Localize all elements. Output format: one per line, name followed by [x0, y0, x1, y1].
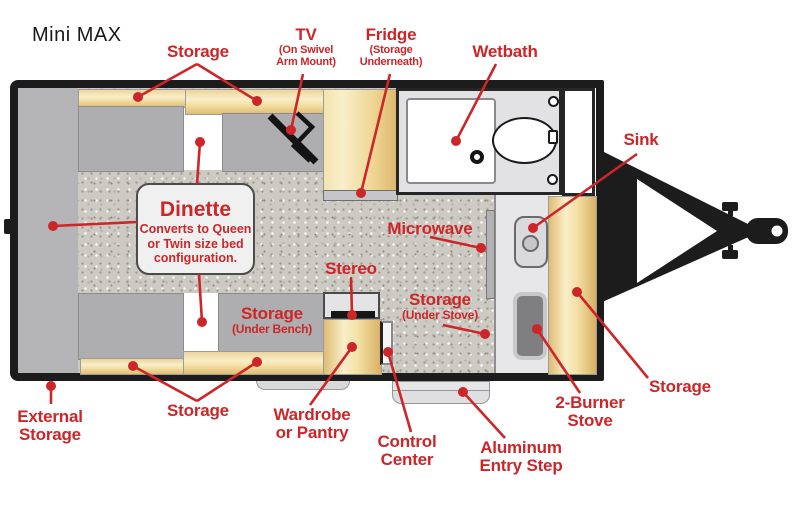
label-two-burner-stove: 2-Burner Stove — [530, 394, 650, 430]
fridge-cabinet — [323, 89, 398, 192]
label-control-center-line2: Center — [347, 451, 467, 469]
label-stereo: Stereo — [301, 260, 401, 278]
wetbath-fitting-bottom-icon — [547, 174, 558, 185]
bench-top-right — [222, 113, 324, 172]
label-fridge-sub2: Underneath) — [331, 56, 451, 68]
label-external-storage-line2: Storage — [0, 426, 100, 444]
label-storage-under-stove-sub: (Under Stove) — [380, 309, 500, 322]
two-burner-stove-unit — [513, 292, 547, 360]
label-two-burner-stove-line1: 2-Burner — [530, 394, 650, 412]
label-storage-bottom: Storage — [138, 402, 258, 420]
sink-faucet-icon — [522, 235, 539, 252]
storage-cabinet-bottom-left — [80, 358, 185, 375]
wetbath-fitting-top-icon — [548, 96, 559, 107]
label-entry-step-line1: Aluminum — [459, 439, 583, 457]
label-fridge: Fridge (Storage Underneath) — [331, 26, 451, 68]
rear-bumper-nub — [4, 219, 13, 234]
dinette-note-line1: Converts to Queen — [138, 222, 253, 237]
external-storage-area — [18, 88, 80, 373]
toilet-hinge — [548, 130, 558, 144]
label-entry-step-line2: Entry Step — [459, 457, 583, 475]
label-sink: Sink — [611, 131, 671, 149]
fridge-base-sill — [323, 190, 398, 201]
label-wardrobe-line1: Wardrobe — [252, 406, 372, 424]
bed-platform-gap-top — [182, 106, 222, 170]
bench-top-left — [78, 106, 184, 172]
label-wetbath: Wetbath — [445, 43, 565, 61]
dinette-note-line2: or Twin size bed — [138, 237, 253, 252]
label-fridge-title: Fridge — [331, 26, 451, 44]
label-storage-under-bench-sub: (Under Bench) — [212, 323, 332, 336]
storage-cabinet-bottom-right — [183, 351, 325, 375]
storage-cabinet-top-right — [185, 89, 324, 115]
bench-bottom-left — [78, 293, 184, 360]
storage-cabinet-front — [548, 196, 597, 375]
label-two-burner-stove-line2: Stove — [530, 412, 650, 430]
aluminum-entry-step-unit — [392, 381, 490, 404]
label-storage-under-bench: Storage (Under Bench) — [212, 305, 332, 336]
stereo-unit — [331, 311, 375, 318]
label-storage-right: Storage — [620, 378, 740, 396]
label-fridge-sub1: (Storage — [331, 44, 451, 56]
label-storage-under-bench-title: Storage — [212, 305, 332, 323]
label-external-storage-line1: External — [0, 408, 100, 426]
label-control-center: Control Center — [347, 433, 467, 469]
entry-step-lower — [392, 390, 490, 404]
label-control-center-line1: Control — [347, 433, 467, 451]
plan-title: Mini MAX — [32, 24, 122, 47]
label-entry-step: Aluminum Entry Step — [459, 439, 583, 475]
dinette-note-line3: configuration. — [138, 251, 253, 266]
control-center-panel — [380, 321, 393, 365]
cabinet-right-of-wetbath — [562, 88, 595, 196]
label-storage-top: Storage — [138, 43, 258, 61]
shower-pan — [406, 98, 496, 184]
floorplan-diagram: Dinette Converts to Queen or Twin size b… — [0, 0, 800, 510]
wheel-fender — [256, 381, 350, 390]
hitch-aframe-icon — [600, 150, 788, 303]
dinette-table: Dinette Converts to Queen or Twin size b… — [136, 183, 255, 275]
label-microwave: Microwave — [370, 220, 490, 238]
label-storage-under-stove: Storage (Under Stove) — [380, 291, 500, 322]
label-external-storage: External Storage — [0, 408, 100, 444]
shower-drain-icon — [470, 150, 484, 164]
label-storage-under-stove-title: Storage — [380, 291, 500, 309]
dinette-label: Dinette — [138, 198, 253, 222]
